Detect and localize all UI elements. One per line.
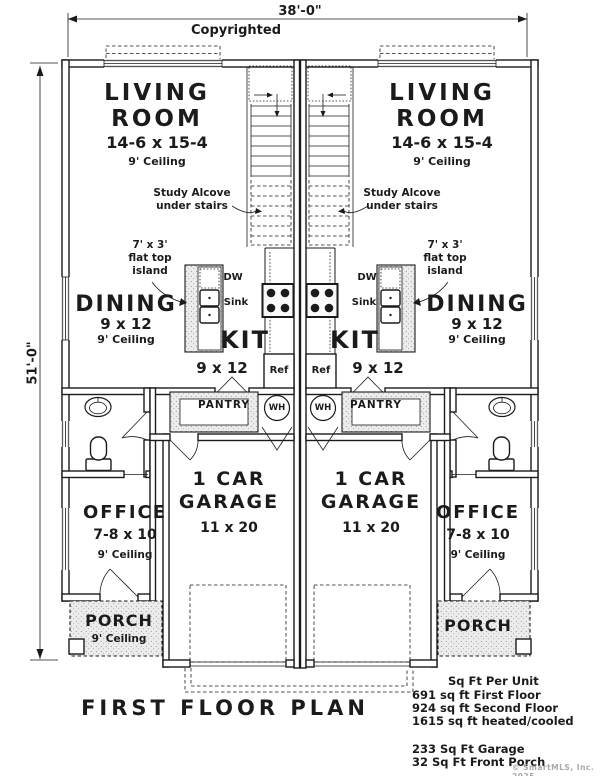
office-ceiling: 9' Ceiling	[451, 550, 506, 561]
porch-label: PORCH	[85, 613, 153, 629]
garage-door-track-left	[190, 585, 286, 662]
ref-label: Ref	[270, 366, 289, 376]
plan-title: FIRST FLOOR PLAN	[81, 698, 369, 719]
stats-garage: 233 Sq Ft Garage	[412, 742, 525, 756]
living-room-dims: 14-6 x 15-4	[106, 135, 208, 151]
porch-ceiling: 9' Ceiling	[92, 634, 147, 645]
kitchen-dims: 9 x 12	[196, 361, 247, 376]
garage-dims: 11 x 20	[342, 521, 400, 535]
pantry-left-unit	[170, 392, 258, 432]
porch-post	[516, 639, 531, 654]
living-room-label: LIVING	[389, 82, 495, 105]
cooktop-icon	[263, 284, 294, 317]
bath-door-arc	[122, 437, 147, 440]
sink-label: Sink	[352, 298, 376, 308]
rear-window-right-unit	[378, 59, 496, 67]
garage-label: 1 CAR	[334, 470, 407, 489]
wh-label: WH	[315, 404, 332, 413]
garage-entry-door-arc	[190, 440, 198, 460]
study-alcove-note: under stairs	[156, 201, 228, 212]
living-room-label: ROOM	[396, 108, 488, 131]
bath-left-unit	[85, 397, 111, 471]
side-windows-left	[61, 277, 69, 570]
garage-entry-door-arc	[402, 440, 410, 460]
party-wall	[294, 60, 300, 668]
island-note: 7' x 3'	[132, 240, 167, 251]
island-note: island	[132, 266, 168, 277]
dw-label: DW	[357, 273, 376, 283]
stairs-right-unit	[308, 66, 353, 247]
side-windows-right	[530, 277, 538, 570]
living-room-ceiling: 9' Ceiling	[128, 156, 185, 167]
garage-label: 1 CAR	[192, 470, 265, 489]
study-alcove-note: under stairs	[366, 201, 438, 212]
office-label: OFFICE	[83, 504, 167, 522]
wh-label: WH	[269, 404, 286, 413]
dining-ceiling: 9' Ceiling	[448, 334, 505, 345]
stats-heated: 1615 sq ft heated/cooled	[412, 714, 574, 728]
dining-label: DINING	[426, 294, 528, 316]
dining-ceiling: 9' Ceiling	[97, 334, 154, 345]
first-floor-plan-drawing: 38'-0" Copyrighted 51'-0" LIVING ROOM 14…	[0, 0, 600, 776]
study-alcove-note: Study Alcove	[153, 188, 230, 199]
pantry-label: PANTRY	[198, 400, 250, 411]
porch-label: PORCH	[444, 618, 512, 634]
driveway-outline	[185, 668, 413, 692]
office-label: OFFICE	[436, 504, 520, 522]
toilet-icon	[489, 437, 514, 471]
bath-right-unit	[489, 397, 515, 471]
office-dims: 7-8 x 10	[446, 528, 510, 542]
stats-header: Sq Ft Per Unit	[448, 674, 539, 688]
island-note: flat top	[423, 253, 466, 264]
living-room-label: LIVING	[104, 82, 210, 105]
living-room-dims: 14-6 x 15-4	[391, 135, 493, 151]
office-dims: 7-8 x 10	[93, 528, 157, 542]
stair-up-arrow-left	[254, 93, 280, 118]
living-room-label: ROOM	[111, 108, 203, 131]
garage-label: GARAGE	[179, 493, 279, 512]
rear-window-left-unit	[104, 59, 222, 67]
island-note: 7' x 3'	[427, 240, 462, 251]
office-ceiling: 9' Ceiling	[98, 550, 153, 561]
kitchen-label: KIT	[330, 328, 380, 352]
dining-dims: 9 x 12	[451, 317, 502, 332]
stairs-left-unit	[247, 66, 292, 247]
garage-door-track-right	[314, 585, 410, 662]
garage-label: GARAGE	[321, 493, 421, 512]
ref-label: Ref	[312, 366, 331, 376]
dining-dims: 9 x 12	[100, 317, 151, 332]
copyright-note: Copyrighted	[191, 24, 281, 37]
dimension-height-label: 51'-0"	[27, 341, 40, 384]
island-note: island	[427, 266, 463, 277]
sink-label: Sink	[224, 298, 248, 308]
dw-label: DW	[223, 273, 242, 283]
island-note: flat top	[128, 253, 171, 264]
garage-dims: 11 x 20	[200, 521, 258, 535]
stats-second-floor: 924 sq ft Second Floor	[412, 701, 558, 715]
stats-first-floor: 691 sq ft First Floor	[412, 688, 541, 702]
rear-patio-outlines	[106, 46, 494, 61]
kitchen-dims: 9 x 12	[352, 361, 403, 376]
living-room-ceiling: 9' Ceiling	[413, 156, 470, 167]
cooktop-icon	[307, 284, 338, 317]
stair-up-arrow-right	[321, 93, 347, 118]
kitchen-label: KIT	[220, 328, 270, 352]
watermark: © SmartMLS, Inc. 2025	[512, 763, 600, 776]
island-right-unit	[377, 265, 415, 352]
floorplan-linework	[0, 0, 600, 776]
dimension-width-label: 38'-0"	[278, 5, 321, 18]
bath-door-arc	[453, 437, 478, 440]
toilet-icon	[86, 437, 111, 471]
study-alcove-note: Study Alcove	[363, 188, 440, 199]
pantry-label: PANTRY	[350, 400, 402, 411]
porch-post	[69, 639, 84, 654]
island-left-unit	[185, 265, 223, 352]
dining-label: DINING	[75, 294, 177, 316]
pantry-right-unit	[342, 392, 430, 432]
